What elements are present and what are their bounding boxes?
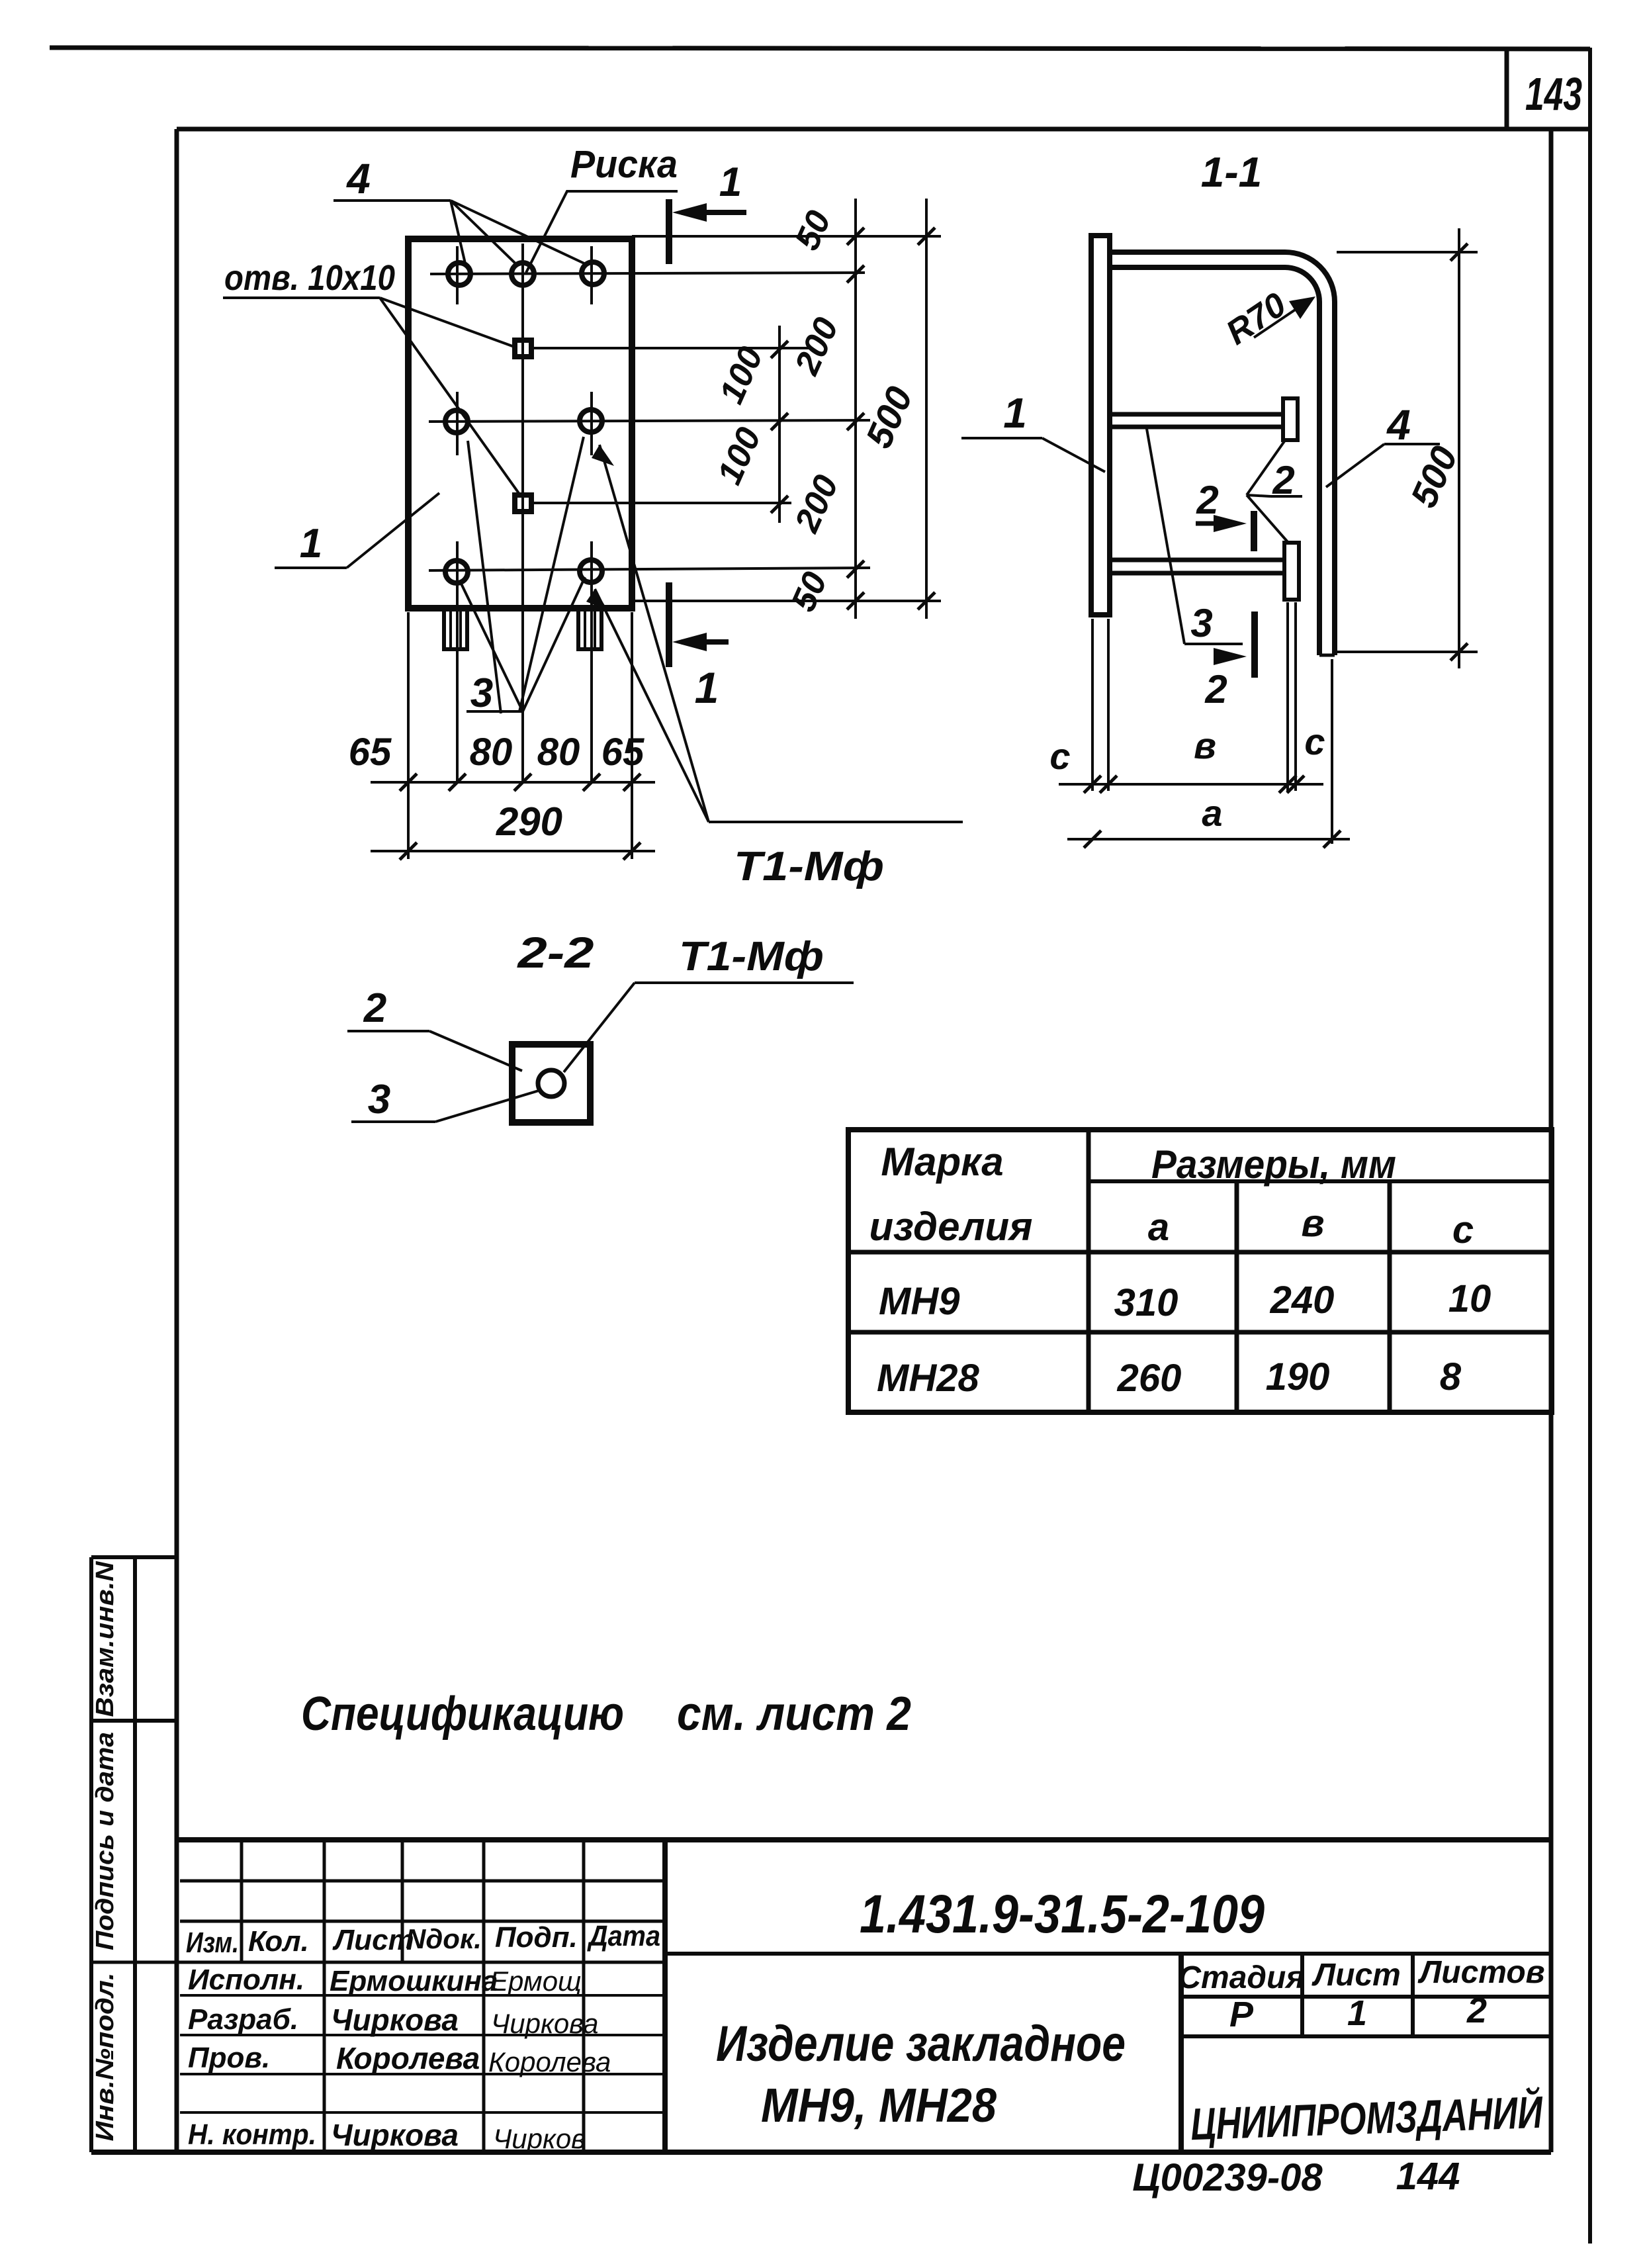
- svg-text:Королева: Королева: [488, 2046, 611, 2077]
- svg-text:МН9: МН9: [879, 1280, 959, 1323]
- svg-text:2: 2: [363, 985, 386, 1031]
- svg-text:100: 100: [712, 341, 770, 410]
- svg-text:a: a: [1202, 792, 1222, 834]
- svg-text:Подпись и дата: Подпись и дата: [91, 1732, 119, 1950]
- svg-text:65: 65: [601, 731, 645, 774]
- svg-text:Подп.: Подп.: [495, 1921, 578, 1954]
- svg-text:Королева: Королева: [336, 2041, 480, 2075]
- svg-text:80: 80: [537, 731, 580, 774]
- svg-text:310: 310: [1114, 1281, 1178, 1324]
- svg-text:200: 200: [787, 312, 846, 381]
- svg-text:МН9, МН28: МН9, МН28: [761, 2079, 997, 2132]
- svg-text:1-1: 1-1: [1201, 148, 1263, 196]
- svg-text:Чиркова: Чиркова: [331, 2118, 459, 2152]
- svg-text:Риска: Риска: [570, 143, 678, 186]
- svg-text:290: 290: [496, 799, 562, 844]
- svg-text:c: c: [1304, 721, 1325, 762]
- svg-text:Кол.: Кол.: [248, 1925, 309, 1958]
- svg-text:Чирков: Чирков: [493, 2123, 586, 2154]
- svg-text:см. лист 2: см. лист 2: [677, 1688, 911, 1741]
- svg-text:ЦНИИПРОМЗДАНИЙ: ЦНИИПРОМЗДАНИЙ: [1190, 2086, 1544, 2150]
- svg-text:в: в: [1301, 1202, 1324, 1245]
- svg-text:190: 190: [1266, 1355, 1330, 1398]
- svg-text:c: c: [1049, 735, 1070, 777]
- svg-text:4: 4: [345, 155, 371, 203]
- svg-text:65: 65: [349, 731, 392, 774]
- svg-text:1: 1: [719, 159, 742, 205]
- svg-text:изделия: изделия: [869, 1204, 1033, 1249]
- svg-text:в: в: [1194, 725, 1216, 766]
- svg-text:1: 1: [1003, 389, 1027, 437]
- svg-text:2-2: 2-2: [516, 928, 594, 977]
- svg-text:с: с: [1452, 1208, 1474, 1251]
- svg-text:Ермощ: Ермощ: [490, 1966, 582, 1997]
- svg-text:Стадия: Стадия: [1178, 1960, 1304, 1995]
- svg-text:3: 3: [368, 1077, 390, 1122]
- svg-text:Т1-Мф: Т1-Мф: [734, 844, 884, 889]
- svg-text:Инв.№подл.: Инв.№подл.: [91, 1973, 119, 2142]
- svg-text:260: 260: [1117, 1357, 1182, 1400]
- svg-text:143: 143: [1525, 68, 1582, 120]
- svg-text:Взам.инв.N: Взам.инв.N: [91, 1561, 119, 1717]
- svg-text:Т1-Мф: Т1-Мф: [679, 934, 824, 979]
- svg-text:Размеры, мм: Размеры, мм: [1151, 1142, 1396, 1187]
- svg-text:Р: Р: [1229, 1995, 1254, 2034]
- svg-text:Исполн.: Исполн.: [188, 1964, 304, 1996]
- svg-text:50: 50: [784, 567, 835, 617]
- svg-text:4: 4: [1386, 401, 1411, 449]
- svg-text:1: 1: [300, 521, 322, 567]
- svg-text:500: 500: [1402, 440, 1466, 514]
- svg-text:80: 80: [470, 731, 513, 774]
- svg-text:Чиркова: Чиркова: [331, 2003, 459, 2037]
- svg-text:Ц00239-08: Ц00239-08: [1132, 2156, 1323, 2199]
- svg-text:Марка: Марка: [881, 1140, 1003, 1184]
- svg-text:Чиркова: Чиркова: [491, 2008, 599, 2039]
- svg-text:3: 3: [1190, 601, 1212, 645]
- svg-text:а: а: [1148, 1206, 1169, 1249]
- svg-text:500: 500: [858, 381, 921, 454]
- svg-text:Спецификацию: Спецификацию: [301, 1688, 624, 1741]
- svg-text:Изделие закладное: Изделие закладное: [716, 2016, 1126, 2072]
- svg-text:Лист: Лист: [332, 1924, 414, 1956]
- svg-text:10: 10: [1448, 1277, 1491, 1320]
- svg-text:200: 200: [787, 470, 846, 539]
- svg-text:1: 1: [695, 663, 719, 712]
- svg-text:Пров.: Пров.: [188, 2042, 270, 2074]
- svg-text:Ермошкина: Ермошкина: [330, 1965, 498, 1997]
- svg-text:Nдок.: Nдок.: [406, 1923, 482, 1954]
- svg-text:2: 2: [1466, 1991, 1487, 2030]
- svg-text:240: 240: [1270, 1279, 1335, 1322]
- svg-text:2: 2: [1204, 667, 1227, 711]
- svg-text:Разраб.: Разраб.: [188, 2003, 298, 2036]
- svg-text:Лист: Лист: [1312, 1958, 1401, 1993]
- svg-text:144: 144: [1396, 2155, 1460, 2198]
- svg-text:Дата: Дата: [586, 1920, 660, 1952]
- svg-text:100: 100: [710, 422, 768, 490]
- svg-text:отв. 10х10: отв. 10х10: [224, 258, 395, 298]
- svg-text:1: 1: [1347, 1993, 1367, 2033]
- svg-text:Листов: Листов: [1417, 1955, 1544, 1990]
- svg-text:3: 3: [470, 670, 493, 716]
- svg-text:Изм.: Изм.: [186, 1927, 239, 1959]
- svg-text:1.431.9-31.5-2-109: 1.431.9-31.5-2-109: [860, 1884, 1265, 1944]
- svg-text:Н. контр.: Н. контр.: [188, 2118, 316, 2151]
- svg-text:50: 50: [788, 205, 839, 256]
- svg-text:8: 8: [1440, 1355, 1462, 1398]
- svg-text:МН28: МН28: [877, 1357, 979, 1400]
